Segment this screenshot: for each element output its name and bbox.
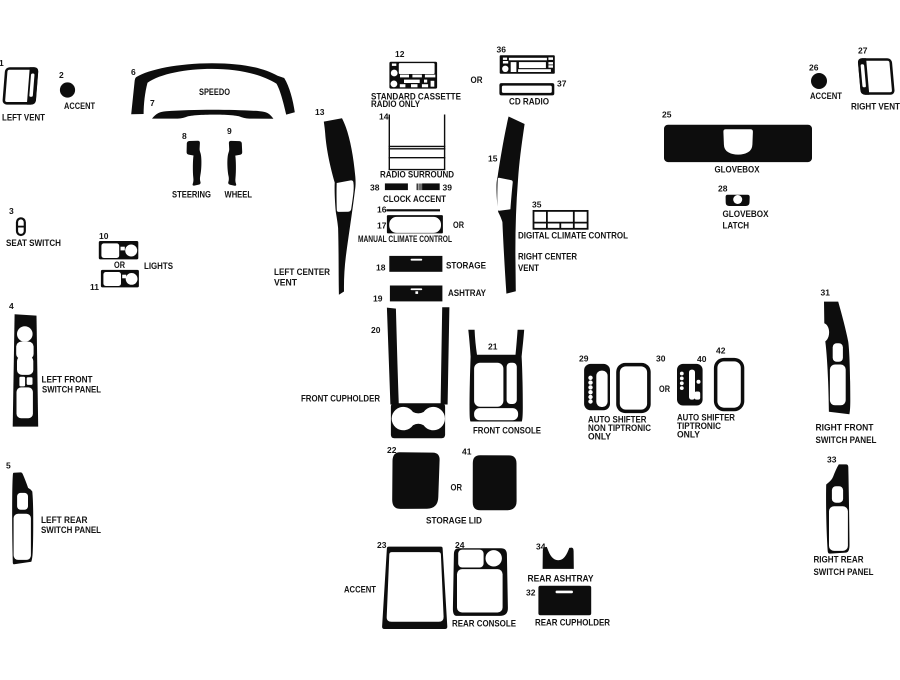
svg-text:SWITCH PANEL: SWITCH PANEL (42, 385, 101, 395)
svg-text:17: 17 (377, 221, 387, 231)
svg-text:2: 2 (59, 70, 64, 80)
svg-text:32: 32 (526, 588, 536, 598)
svg-text:REAR CUPHOLDER: REAR CUPHOLDER (535, 618, 610, 628)
svg-text:29: 29 (579, 354, 589, 364)
svg-text:28: 28 (718, 184, 728, 194)
svg-text:REAR CONSOLE: REAR CONSOLE (452, 619, 516, 629)
svg-text:ACCENT: ACCENT (344, 585, 376, 595)
svg-text:35: 35 (532, 200, 542, 210)
svg-text:RADIO SURROUND: RADIO SURROUND (380, 170, 454, 180)
svg-text:33: 33 (827, 455, 837, 465)
svg-text:39: 39 (443, 183, 453, 193)
svg-text:11: 11 (90, 282, 99, 292)
svg-text:LIGHTS: LIGHTS (144, 261, 173, 271)
svg-text:VENT: VENT (274, 278, 297, 288)
svg-text:SPEEDO: SPEEDO (199, 87, 230, 97)
svg-text:FRONT CONSOLE: FRONT CONSOLE (473, 426, 541, 436)
svg-text:MANUAL CLIMATE CONTROL: MANUAL CLIMATE CONTROL (358, 234, 452, 244)
svg-text:CD RADIO: CD RADIO (509, 97, 549, 107)
svg-text:3: 3 (9, 206, 14, 216)
svg-text:36: 36 (497, 45, 507, 55)
svg-text:LATCH: LATCH (723, 221, 750, 231)
svg-text:8: 8 (182, 131, 187, 141)
svg-text:STORAGE: STORAGE (446, 261, 486, 271)
svg-text:RIGHT FRONT: RIGHT FRONT (816, 423, 874, 433)
svg-text:20: 20 (371, 325, 381, 335)
svg-text:WHEEL: WHEEL (225, 190, 253, 200)
svg-text:OR: OR (659, 384, 670, 394)
svg-text:34: 34 (536, 542, 546, 552)
svg-text:31: 31 (821, 288, 831, 298)
svg-text:7: 7 (150, 98, 155, 108)
svg-text:SEAT SWITCH: SEAT SWITCH (6, 238, 61, 248)
svg-text:6: 6 (131, 67, 136, 77)
svg-text:14: 14 (379, 112, 389, 122)
svg-text:4: 4 (9, 301, 14, 311)
svg-text:RIGHT REAR: RIGHT REAR (814, 555, 864, 565)
svg-text:38: 38 (370, 183, 380, 193)
svg-text:RIGHT CENTER: RIGHT CENTER (518, 252, 577, 262)
svg-text:OR: OR (114, 260, 125, 270)
svg-text:ASHTRAY: ASHTRAY (448, 288, 486, 298)
svg-text:40: 40 (697, 354, 707, 364)
svg-text:VENT: VENT (518, 263, 539, 273)
svg-text:12: 12 (395, 49, 405, 59)
svg-text:18: 18 (376, 263, 386, 273)
svg-text:ACCENT: ACCENT (64, 101, 95, 111)
svg-text:GLOVEBOX: GLOVEBOX (715, 165, 760, 175)
svg-text:21: 21 (488, 342, 498, 352)
svg-text:ONLY: ONLY (588, 432, 611, 442)
svg-text:24: 24 (455, 540, 465, 550)
svg-text:LEFT VENT: LEFT VENT (2, 113, 45, 123)
svg-text:23: 23 (377, 540, 387, 550)
svg-text:27: 27 (858, 46, 868, 56)
svg-text:ONLY: ONLY (677, 430, 700, 440)
svg-text:16: 16 (377, 205, 387, 215)
svg-text:25: 25 (662, 110, 672, 120)
svg-text:RIGHT VENT: RIGHT VENT (851, 102, 900, 112)
svg-text:5: 5 (6, 461, 11, 471)
svg-text:LEFT FRONT: LEFT FRONT (42, 375, 93, 385)
svg-text:30: 30 (656, 354, 666, 364)
svg-text:13: 13 (315, 107, 325, 117)
svg-text:OR: OR (471, 75, 483, 85)
svg-text:1: 1 (0, 58, 4, 68)
svg-text:DIGITAL CLIMATE CONTROL: DIGITAL CLIMATE CONTROL (518, 231, 628, 241)
svg-text:STORAGE LID: STORAGE LID (426, 516, 482, 526)
svg-text:STEERING: STEERING (172, 190, 211, 200)
svg-text:41: 41 (462, 447, 472, 457)
svg-text:RADIO ONLY: RADIO ONLY (371, 99, 420, 109)
svg-text:19: 19 (373, 294, 383, 304)
svg-text:26: 26 (809, 63, 819, 73)
svg-text:OR: OR (451, 483, 463, 493)
svg-text:FRONT CUPHOLDER: FRONT CUPHOLDER (301, 394, 380, 404)
svg-text:22: 22 (387, 445, 397, 455)
svg-text:10: 10 (99, 231, 109, 241)
svg-text:37: 37 (557, 79, 567, 89)
svg-text:REAR ASHTRAY: REAR ASHTRAY (528, 574, 594, 584)
svg-text:SWITCH PANEL: SWITCH PANEL (41, 525, 101, 535)
svg-text:GLOVEBOX: GLOVEBOX (723, 209, 769, 219)
svg-text:SWITCH PANEL: SWITCH PANEL (816, 435, 877, 445)
svg-text:ACCENT: ACCENT (810, 91, 842, 101)
svg-text:15: 15 (488, 154, 498, 164)
svg-text:OR: OR (453, 220, 464, 230)
svg-text:9: 9 (227, 126, 232, 136)
svg-text:42: 42 (716, 346, 726, 356)
svg-text:SWITCH PANEL: SWITCH PANEL (814, 567, 874, 577)
svg-text:CLOCK ACCENT: CLOCK ACCENT (383, 194, 446, 204)
svg-text:LEFT CENTER: LEFT CENTER (274, 267, 330, 277)
svg-text:LEFT REAR: LEFT REAR (41, 515, 88, 525)
